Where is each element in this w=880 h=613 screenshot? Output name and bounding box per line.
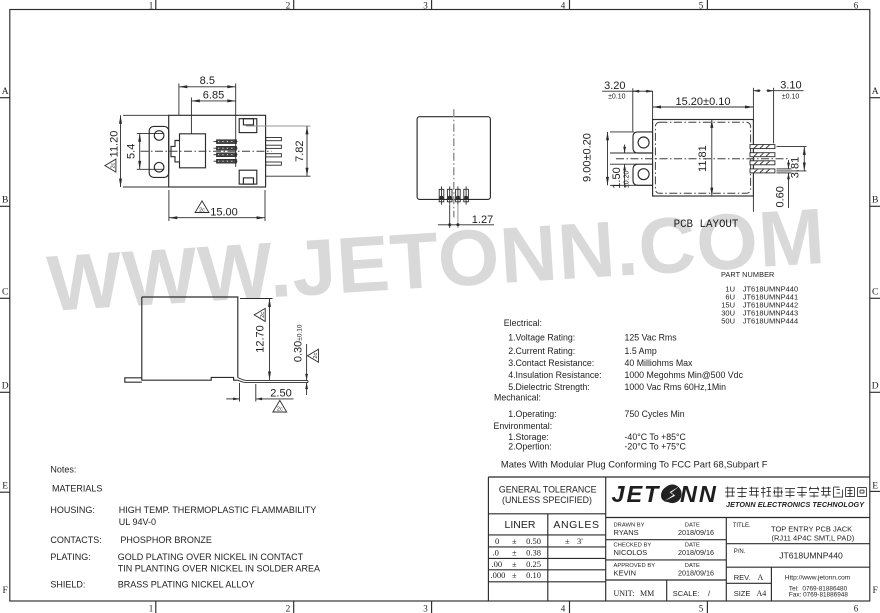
svg-text:UNIT:: UNIT: bbox=[614, 589, 635, 598]
svg-text:2: 2 bbox=[286, 1, 291, 11]
svg-text:1.Storage:: 1.Storage: bbox=[508, 432, 549, 442]
svg-text:HIGH TEMP. THERMOPLASTIC FLAMM: HIGH TEMP. THERMOPLASTIC FLAMMABILITY bbox=[119, 505, 317, 515]
svg-text:A: A bbox=[758, 573, 764, 582]
svg-text:UL 94V-0: UL 94V-0 bbox=[119, 517, 156, 527]
svg-text:±: ± bbox=[565, 536, 570, 546]
svg-text:F: F bbox=[873, 586, 878, 596]
svg-text:B: B bbox=[872, 196, 878, 206]
svg-text:3: 3 bbox=[423, 604, 428, 613]
svg-text:0.60: 0.60 bbox=[774, 186, 786, 207]
svg-text:P/N.: P/N. bbox=[734, 549, 746, 555]
svg-text:±: ± bbox=[512, 547, 517, 557]
svg-text:2.50: 2.50 bbox=[270, 388, 291, 400]
svg-text:11.20: 11.20 bbox=[109, 131, 121, 158]
svg-text:Environmental:: Environmental: bbox=[494, 421, 553, 431]
svg-text:±: ± bbox=[512, 559, 517, 569]
svg-text:1.Voltage Rating:: 1.Voltage Rating: bbox=[508, 333, 575, 343]
svg-text:A: A bbox=[872, 87, 879, 97]
svg-text:PLATING:: PLATING: bbox=[50, 552, 90, 562]
svg-text:A: A bbox=[2, 87, 9, 97]
svg-text:4: 4 bbox=[561, 1, 566, 11]
svg-text:3': 3' bbox=[577, 536, 583, 546]
svg-text:15.20±0.10: 15.20±0.10 bbox=[676, 96, 731, 108]
svg-text:9.00±0.20: 9.00±0.20 bbox=[582, 133, 594, 182]
svg-text:SHIELD:: SHIELD: bbox=[50, 580, 85, 590]
svg-text:-20°C To +75°C: -20°C To +75°C bbox=[625, 442, 687, 452]
svg-text:11.81: 11.81 bbox=[697, 145, 709, 172]
svg-text:0.50: 0.50 bbox=[526, 536, 541, 546]
svg-text:REV.: REV. bbox=[734, 573, 751, 582]
svg-text:3.81: 3.81 bbox=[790, 157, 802, 178]
svg-text:4.Insulation Resistance:: 4.Insulation Resistance: bbox=[508, 370, 601, 380]
svg-text:1000 Megohms Min@500 Vdc: 1000 Megohms Min@500 Vdc bbox=[625, 370, 744, 380]
svg-text:2c: 2c bbox=[199, 207, 205, 213]
svg-text:15.00: 15.00 bbox=[210, 207, 238, 219]
svg-text:2.Opertion:: 2.Opertion: bbox=[508, 442, 552, 452]
svg-text:JT618UMNP440: JT618UMNP440 bbox=[779, 551, 843, 561]
svg-text:4: 4 bbox=[561, 604, 566, 613]
svg-text:2c: 2c bbox=[277, 407, 283, 413]
svg-text:JETONN ELECTRONICS TECHNOLOGY: JETONN ELECTRONICS TECHNOLOGY bbox=[726, 500, 865, 509]
svg-text:1.27: 1.27 bbox=[472, 214, 493, 226]
svg-text:PART NUMBER: PART NUMBER bbox=[721, 270, 774, 279]
svg-text:6: 6 bbox=[854, 1, 859, 11]
svg-text:2c: 2c bbox=[313, 353, 319, 359]
svg-text:TIN PLANTING OVER NICKEL IN SO: TIN PLANTING OVER NICKEL IN SOLDER AREA bbox=[118, 564, 320, 574]
svg-text:(RJ11 4P4C SMT,L PAD): (RJ11 4P4C SMT,L PAD) bbox=[771, 533, 854, 542]
svg-text:6: 6 bbox=[854, 604, 859, 613]
svg-text:0.38: 0.38 bbox=[526, 547, 541, 557]
svg-text:GOLD PLATING OVER NICKEL IN CO: GOLD PLATING OVER NICKEL IN CONTACT bbox=[118, 552, 304, 562]
svg-text:±: ± bbox=[512, 536, 517, 546]
svg-text:SCALE:: SCALE: bbox=[673, 589, 700, 598]
svg-text:GENERAL TOLERANCE: GENERAL TOLERANCE bbox=[499, 484, 597, 494]
svg-text:SIZE: SIZE bbox=[734, 589, 751, 598]
svg-text:3.20: 3.20 bbox=[604, 80, 625, 92]
svg-text:.000: .000 bbox=[491, 570, 506, 580]
svg-text:Http://www.jetonn.com: Http://www.jetonn.com bbox=[785, 575, 851, 582]
svg-text:0.10: 0.10 bbox=[526, 570, 541, 580]
svg-text:BRASS PLATING NICKEL ALLOY: BRASS PLATING NICKEL ALLOY bbox=[118, 580, 255, 590]
svg-text:MATERIALS: MATERIALS bbox=[52, 484, 102, 494]
svg-text:7.82: 7.82 bbox=[294, 140, 306, 161]
svg-text:HOUSING:: HOUSING: bbox=[50, 505, 95, 515]
svg-text:50U: 50U bbox=[721, 317, 735, 326]
svg-text:MM: MM bbox=[640, 589, 654, 598]
svg-text:ANGLES: ANGLES bbox=[553, 519, 599, 531]
svg-text:2.Current Rating:: 2.Current Rating: bbox=[508, 346, 575, 356]
svg-text:LINER: LINER bbox=[505, 519, 536, 531]
svg-text:2c: 2c bbox=[260, 312, 266, 318]
svg-text:±0.10: ±0.10 bbox=[782, 93, 800, 100]
svg-text:6.85: 6.85 bbox=[203, 89, 224, 101]
svg-text:Electrical:: Electrical: bbox=[504, 318, 542, 328]
svg-text:750 Cycles Min: 750 Cycles Min bbox=[625, 409, 685, 419]
svg-text:5.4: 5.4 bbox=[126, 144, 138, 159]
svg-text:E: E bbox=[872, 482, 878, 492]
svg-text:D: D bbox=[2, 382, 9, 392]
svg-text:1: 1 bbox=[149, 1, 154, 11]
svg-text:.00: .00 bbox=[492, 559, 503, 569]
svg-text:40 Milliohms Max: 40 Milliohms Max bbox=[625, 358, 694, 368]
svg-text:±0.10: ±0.10 bbox=[608, 93, 626, 100]
svg-text:TITLE.: TITLE. bbox=[733, 523, 751, 529]
svg-text:1.5 Amp: 1.5 Amp bbox=[625, 346, 657, 356]
svg-text:±: ± bbox=[512, 570, 517, 580]
svg-text:1.Operating:: 1.Operating: bbox=[508, 409, 556, 419]
svg-text:(UNLESS SPECIFIED): (UNLESS SPECIFIED) bbox=[502, 495, 592, 505]
svg-text:JT618UMNP444: JT618UMNP444 bbox=[743, 317, 798, 326]
svg-text:PHOSPHOR BRONZE: PHOSPHOR BRONZE bbox=[120, 535, 212, 545]
svg-text:Mechanical:: Mechanical: bbox=[494, 393, 541, 403]
svg-text:Notes:: Notes: bbox=[50, 465, 76, 475]
svg-text:1000 Vac Rms 60Hz,1Min: 1000 Vac Rms 60Hz,1Min bbox=[625, 382, 727, 392]
svg-text:A4: A4 bbox=[757, 589, 767, 598]
svg-text:12.70: 12.70 bbox=[255, 325, 267, 353]
svg-text:5.Dielectric Strength:: 5.Dielectric Strength: bbox=[508, 382, 590, 392]
svg-text:3.10: 3.10 bbox=[780, 80, 801, 92]
svg-text:.0: .0 bbox=[493, 547, 499, 557]
svg-text:8.5: 8.5 bbox=[200, 75, 215, 87]
svg-text:3: 3 bbox=[423, 1, 428, 11]
svg-text:2: 2 bbox=[286, 604, 291, 613]
svg-text:Mates With Modular Plug Confor: Mates With Modular Plug Conforming To FC… bbox=[501, 458, 768, 469]
svg-text:F: F bbox=[3, 586, 8, 596]
svg-text:NICOLOS: NICOLOS bbox=[614, 548, 648, 557]
svg-text:2c: 2c bbox=[111, 162, 117, 168]
svg-text:D: D bbox=[872, 382, 879, 392]
svg-text:125 Vac Rms: 125 Vac Rms bbox=[625, 333, 678, 343]
svg-text:±0.20: ±0.20 bbox=[623, 170, 630, 188]
svg-text:1: 1 bbox=[149, 604, 154, 613]
svg-text:2018/09/16: 2018/09/16 bbox=[678, 568, 714, 577]
svg-text:0: 0 bbox=[495, 536, 499, 546]
svg-text:PCB LAYOUT: PCB LAYOUT bbox=[674, 219, 739, 231]
svg-text:RYANS: RYANS bbox=[614, 528, 639, 537]
svg-text:TOP ENTRY PCB JACK: TOP ENTRY PCB JACK bbox=[771, 524, 852, 533]
svg-text:KEVIN: KEVIN bbox=[614, 568, 637, 577]
svg-text:5: 5 bbox=[699, 604, 704, 613]
svg-text:2018/09/16: 2018/09/16 bbox=[678, 548, 714, 557]
svg-text:C: C bbox=[872, 288, 878, 298]
svg-text:-40°C To +85°C: -40°C To +85°C bbox=[625, 432, 687, 442]
svg-text:E: E bbox=[2, 482, 8, 492]
svg-text:C: C bbox=[2, 288, 8, 298]
svg-text:Fax: 0769-81886948: Fax: 0769-81886948 bbox=[789, 591, 848, 598]
svg-text:2018/09/16: 2018/09/16 bbox=[678, 528, 714, 537]
svg-text:CONTACTS:: CONTACTS: bbox=[50, 535, 101, 545]
svg-text:5: 5 bbox=[699, 1, 704, 11]
svg-text:0.25: 0.25 bbox=[526, 559, 541, 569]
svg-text:B: B bbox=[2, 196, 8, 206]
svg-text:1.50: 1.50 bbox=[611, 167, 623, 188]
svg-text:3.Contact Resistance:: 3.Contact Resistance: bbox=[508, 358, 594, 368]
